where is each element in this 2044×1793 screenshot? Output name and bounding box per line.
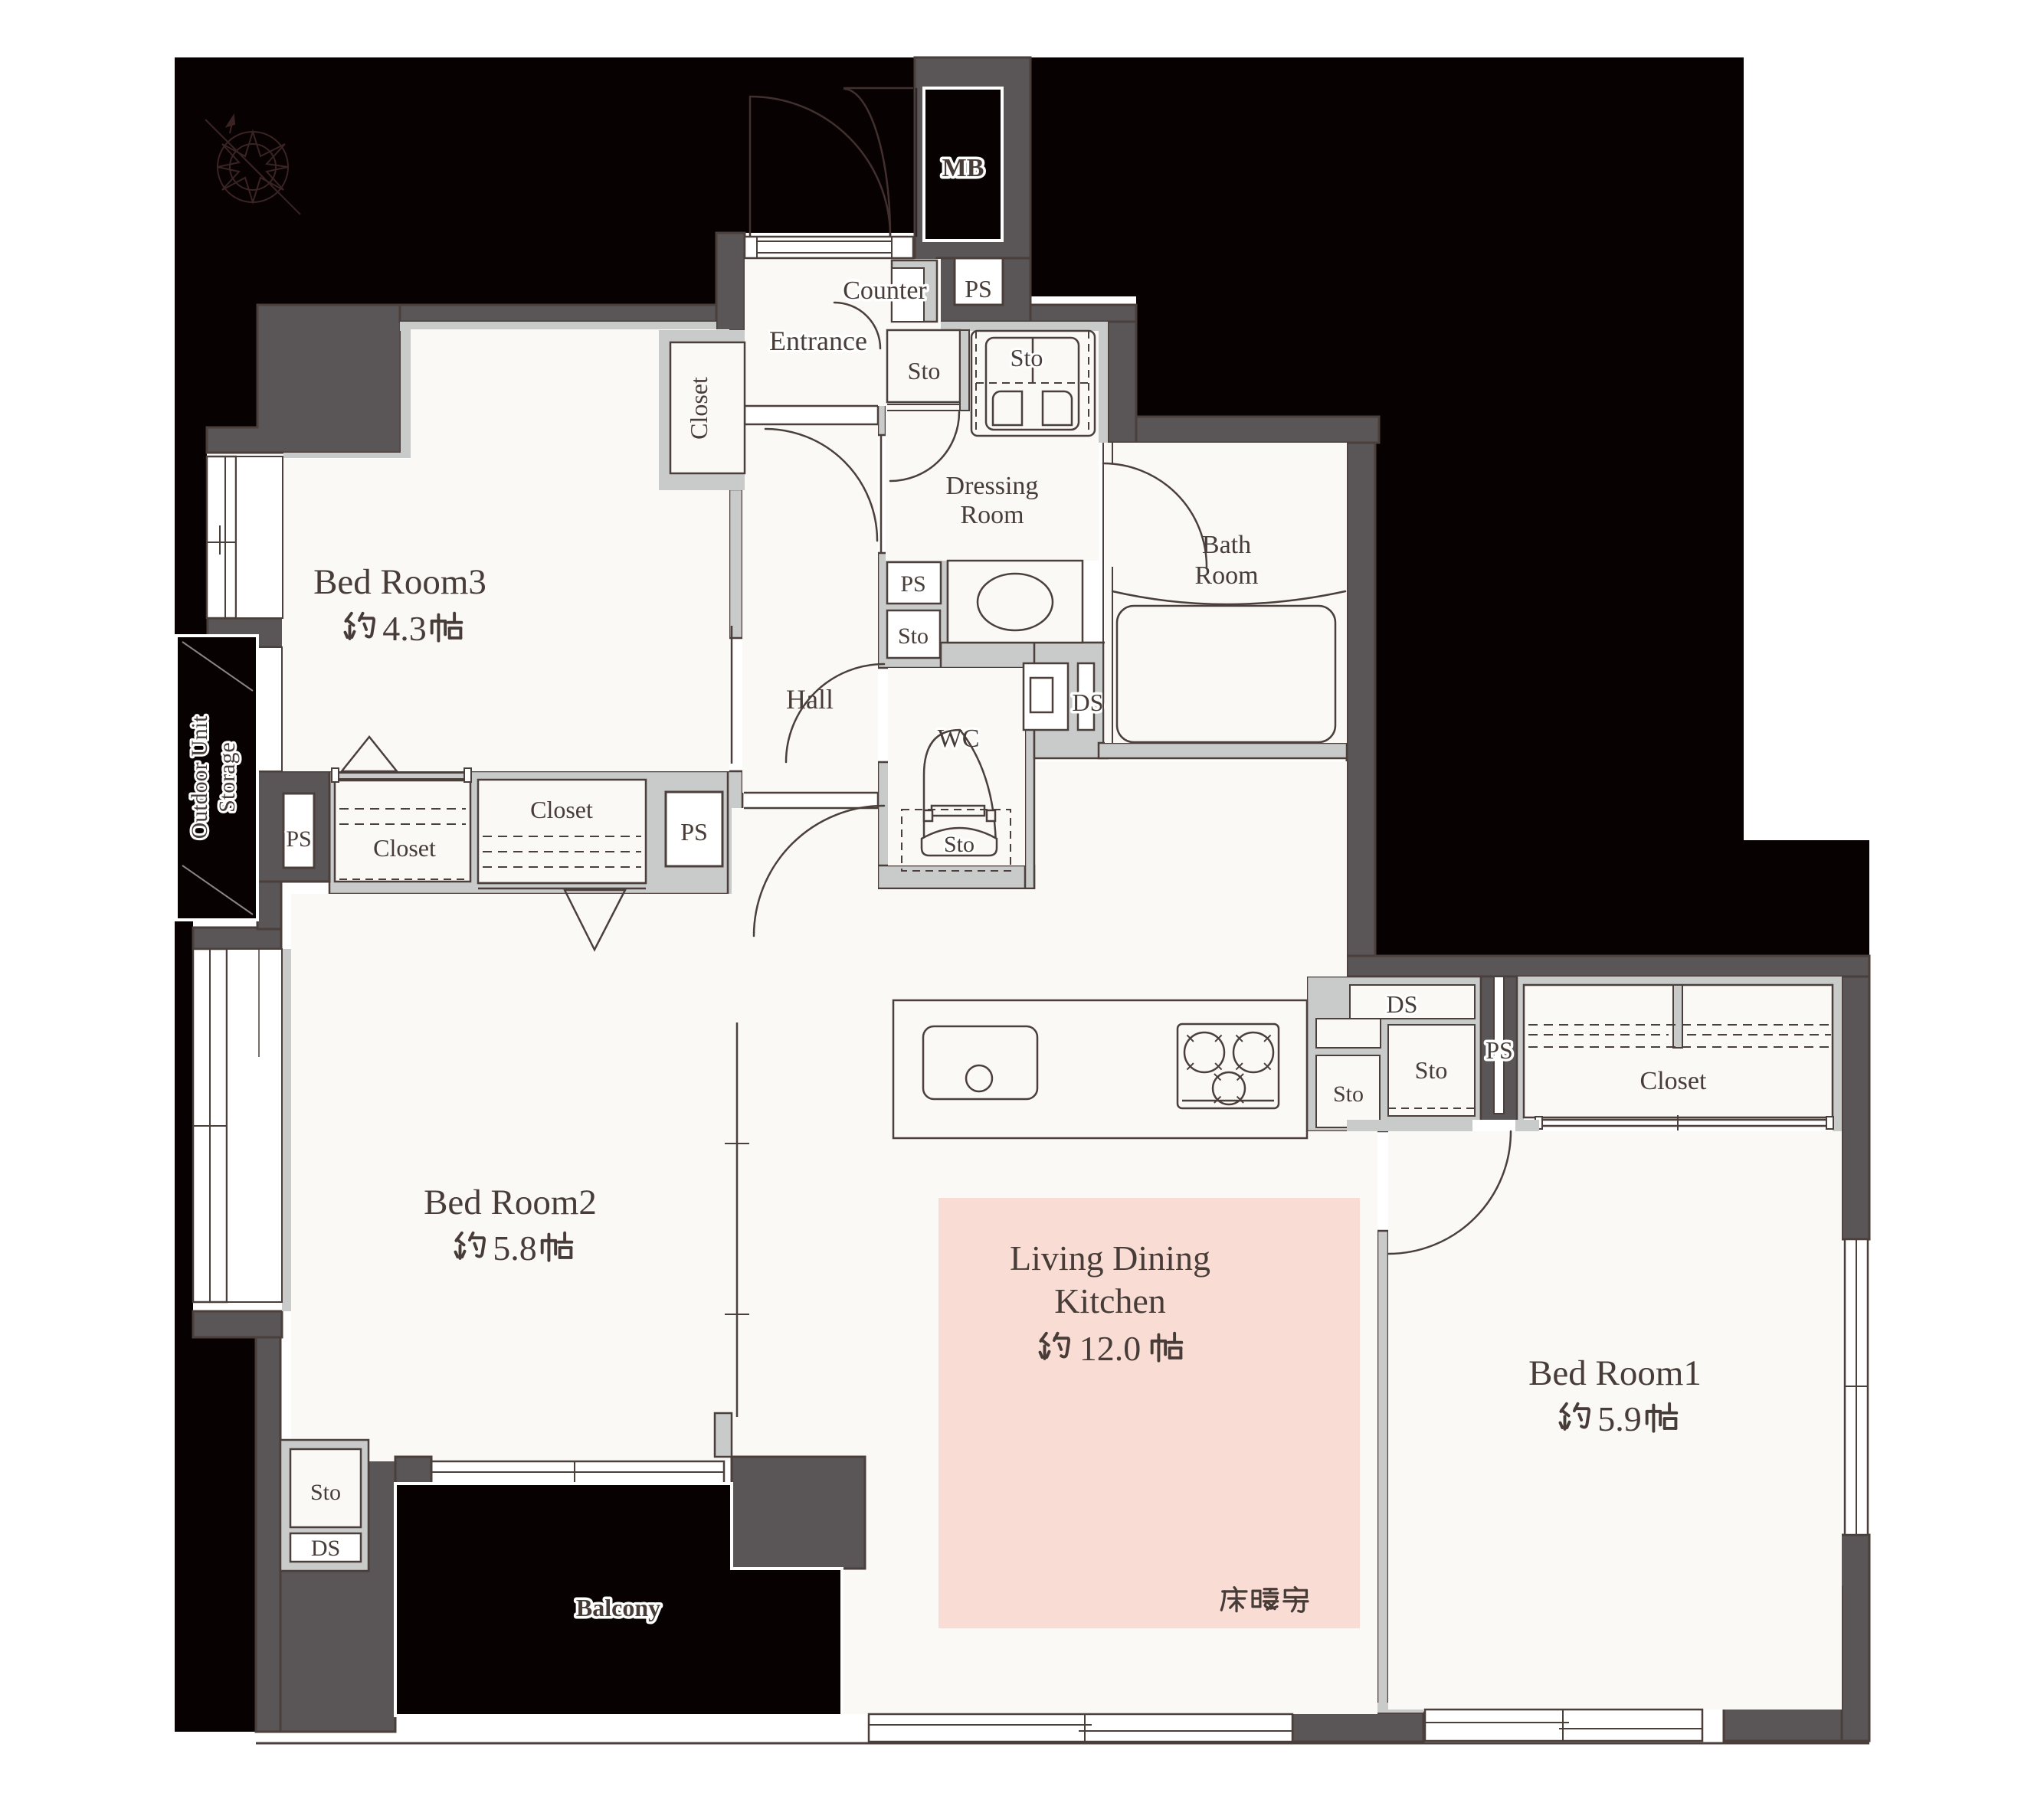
svg-text:Room: Room xyxy=(960,501,1024,529)
svg-text:Outdoor Unit: Outdoor Unit xyxy=(187,715,212,839)
svg-text:DS: DS xyxy=(1073,689,1104,716)
svg-text:5.9: 5.9 xyxy=(1597,1399,1642,1438)
svg-text:MB: MB xyxy=(942,154,984,182)
svg-text:Sto: Sto xyxy=(944,832,975,857)
svg-text:PS: PS xyxy=(965,275,992,303)
svg-text:Room: Room xyxy=(1194,561,1258,590)
svg-text:Closet: Closet xyxy=(1640,1067,1707,1095)
svg-text:Closet: Closet xyxy=(373,834,436,862)
svg-text:Bath: Bath xyxy=(1202,531,1251,559)
svg-text:Closet: Closet xyxy=(530,796,593,823)
svg-text:Counter: Counter xyxy=(843,276,927,305)
svg-text:Balcony: Balcony xyxy=(576,1594,660,1621)
svg-text:Sto: Sto xyxy=(1415,1056,1448,1084)
svg-text:PS: PS xyxy=(1486,1036,1513,1064)
svg-text:Bed Room2: Bed Room2 xyxy=(424,1183,597,1222)
svg-text:DS: DS xyxy=(311,1536,340,1561)
svg-text:PS: PS xyxy=(680,818,708,846)
svg-text:Bed Room1: Bed Room1 xyxy=(1528,1353,1702,1393)
svg-text:Entrance: Entrance xyxy=(769,326,867,356)
svg-text:Sto: Sto xyxy=(1333,1081,1364,1107)
svg-text:Bed Room3: Bed Room3 xyxy=(313,562,486,602)
svg-text:Living Dining: Living Dining xyxy=(1010,1238,1210,1278)
svg-text:Kitchen: Kitchen xyxy=(1054,1281,1166,1320)
svg-text:5.8: 5.8 xyxy=(493,1229,537,1268)
svg-text:Sto: Sto xyxy=(898,623,929,649)
svg-text:12.0: 12.0 xyxy=(1079,1329,1142,1368)
svg-text:PS: PS xyxy=(286,826,311,852)
svg-text:PS: PS xyxy=(900,571,925,597)
svg-text:Sto: Sto xyxy=(310,1480,341,1505)
svg-text:Sto: Sto xyxy=(1011,344,1043,371)
svg-text:Storage: Storage xyxy=(215,742,240,813)
svg-text:DS: DS xyxy=(1387,990,1418,1018)
svg-text:4.3: 4.3 xyxy=(382,609,427,648)
svg-text:Closet: Closet xyxy=(685,377,712,440)
svg-text:Dressing: Dressing xyxy=(946,472,1039,500)
svg-text:Sto: Sto xyxy=(908,357,941,384)
